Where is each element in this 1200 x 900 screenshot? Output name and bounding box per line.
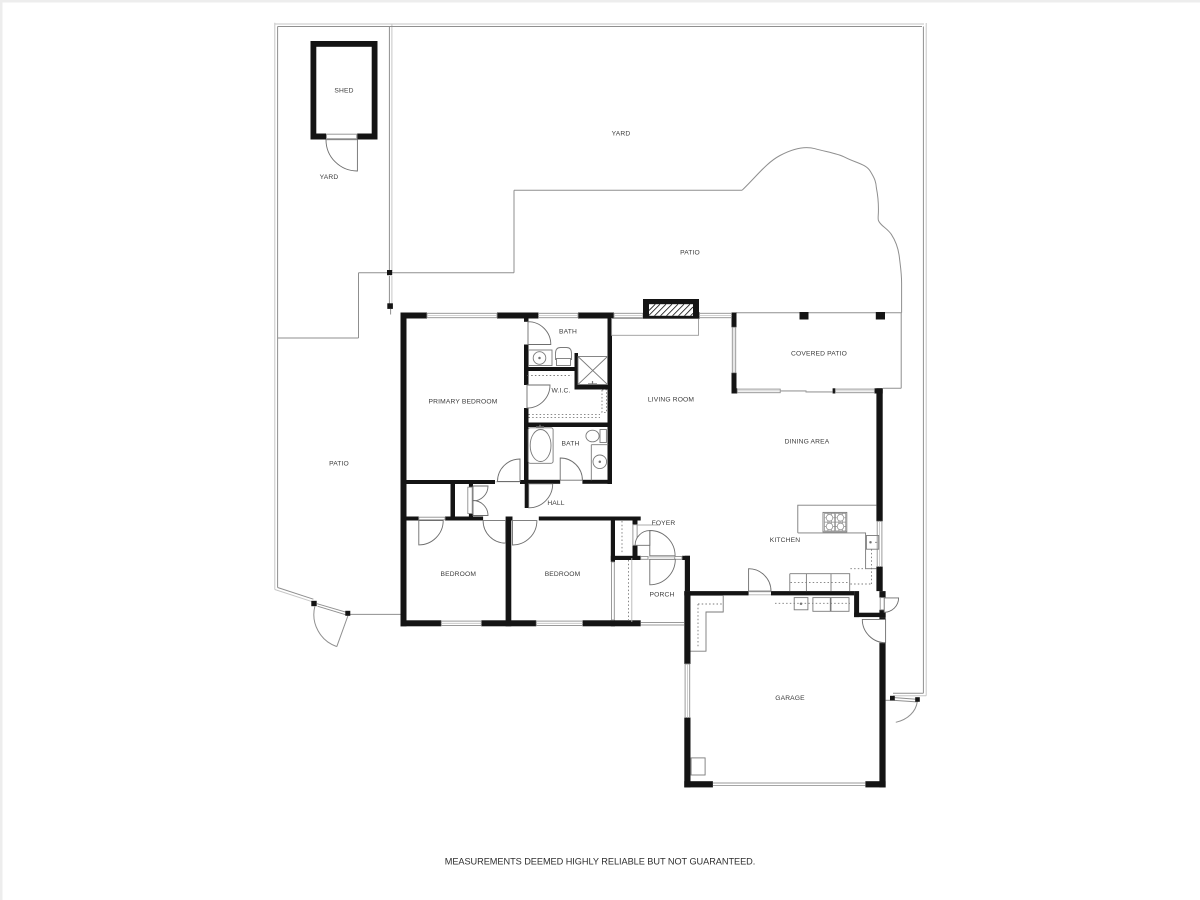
- svg-text:COVERED PATIO: COVERED PATIO: [791, 351, 847, 358]
- svg-text:PATIO: PATIO: [329, 461, 349, 468]
- svg-text:GARAGE: GARAGE: [775, 695, 805, 702]
- svg-text:BEDROOM: BEDROOM: [545, 571, 581, 578]
- svg-text:PORCH: PORCH: [650, 592, 675, 599]
- svg-text:PRIMARY BEDROOM: PRIMARY BEDROOM: [429, 399, 498, 406]
- svg-text:DINING AREA: DINING AREA: [785, 439, 830, 446]
- svg-text:YARD: YARD: [612, 131, 631, 138]
- svg-text:KITCHEN: KITCHEN: [770, 537, 800, 544]
- svg-text:W.I.C.: W.I.C.: [551, 388, 570, 395]
- svg-text:SHED: SHED: [334, 88, 353, 95]
- svg-text:BEDROOM: BEDROOM: [440, 571, 476, 578]
- svg-text:MEASUREMENTS DEEMED HIGHLY REL: MEASUREMENTS DEEMED HIGHLY RELIABLE BUT …: [445, 857, 756, 867]
- svg-text:BATH: BATH: [562, 441, 580, 448]
- svg-text:LIVING ROOM: LIVING ROOM: [648, 397, 695, 404]
- svg-text:FOYER: FOYER: [652, 520, 676, 527]
- svg-text:BATH: BATH: [559, 329, 577, 336]
- svg-text:PATIO: PATIO: [680, 250, 700, 257]
- svg-text:HALL: HALL: [547, 500, 564, 507]
- svg-text:YARD: YARD: [320, 174, 339, 181]
